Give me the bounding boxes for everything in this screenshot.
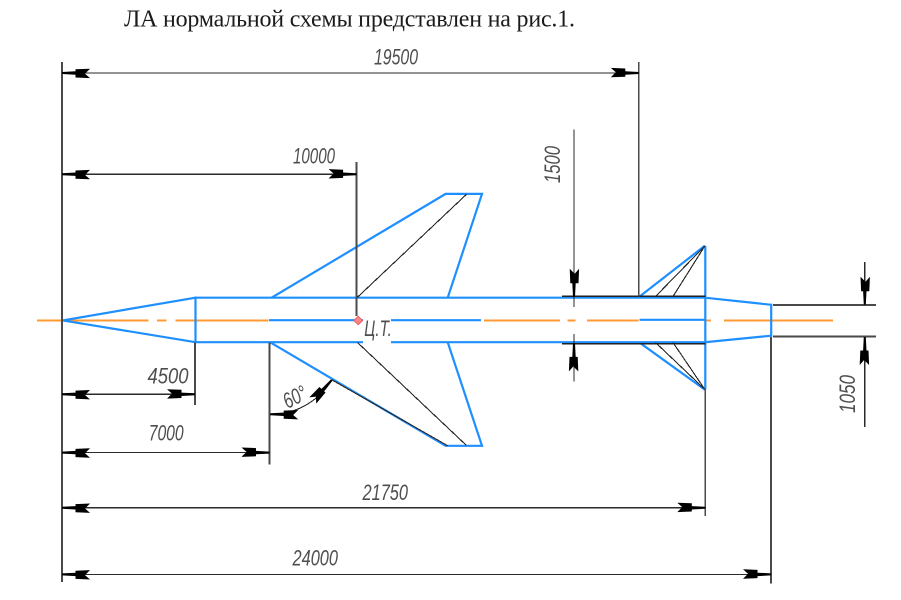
svg-text:21750: 21750 [362, 480, 409, 505]
svg-text:Ц.Т.: Ц.Т. [364, 316, 392, 341]
svg-text:1500: 1500 [540, 145, 565, 183]
svg-text:7000: 7000 [149, 420, 185, 445]
svg-text:19500: 19500 [374, 45, 419, 70]
svg-text:1050: 1050 [835, 374, 860, 413]
svg-text:24000: 24000 [292, 546, 339, 571]
svg-text:ЛА нормальной схемы представле: ЛА нормальной схемы представлен на рис.1… [124, 7, 575, 33]
svg-text:10000: 10000 [293, 143, 336, 168]
svg-text:60°: 60° [278, 380, 311, 413]
svg-text:4500: 4500 [148, 364, 190, 389]
